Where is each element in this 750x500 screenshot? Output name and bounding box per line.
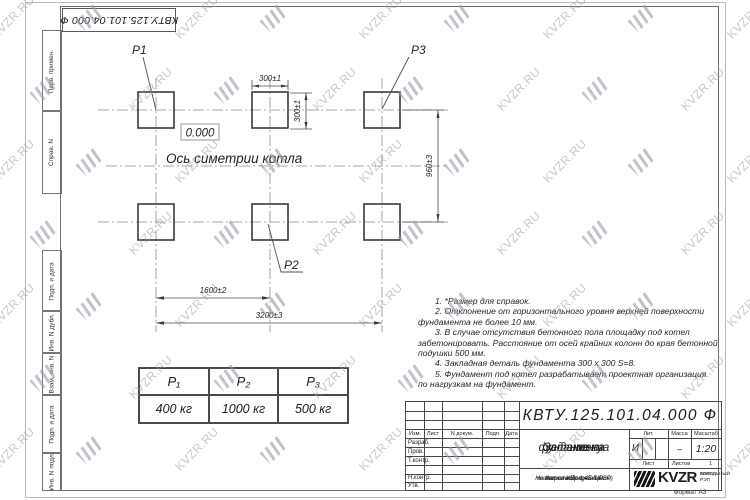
tb-header-data: Дата [504, 429, 519, 438]
technical-notes: 1. *Размер для справок. 2. Отклонение от… [418, 296, 718, 390]
kvzr-logo-icon [634, 471, 655, 487]
symmetry-axis-label: Ось симетрии котла [166, 151, 303, 166]
label-p1: Р1 [132, 43, 147, 57]
tb-header-list: Лист [424, 429, 442, 438]
dim-1600: 1600±2 [200, 286, 227, 295]
note-line: забетонировать. Расстояние от осей крайн… [418, 338, 718, 348]
tb-header-ndokum: N докум. [442, 429, 482, 438]
format-label: Формат А3 [640, 489, 740, 496]
tb-header-izm: Изм. [406, 429, 424, 438]
sheets-value: 1 [709, 461, 712, 467]
sheet-label: Лист [629, 459, 668, 468]
note-line: 2. Отклонение от горизонтального уровня … [418, 306, 718, 316]
label-p3: Р3 [411, 43, 426, 57]
mass-value: – [668, 438, 691, 459]
note-line: 5. Фундамент под котел разрабатывает про… [418, 369, 718, 379]
center-axes [98, 78, 448, 332]
loads-value-p1: 400 кг [139, 395, 209, 423]
kvzr-logo-text: KVZR [658, 469, 697, 486]
title-block: КВТУ.125.101.04.000 Ф Изм. Лист N докум.… [405, 401, 722, 491]
lit-label: Лит. [629, 429, 668, 438]
manufacturer-logo: KVZR КОТЕЛЬНЫЙ ЗАВОД РЭП [629, 468, 721, 490]
loads-table: Р₁ Р₂ Р₃ 400 кг 1000 кг 500 кг [138, 367, 349, 424]
lit-value: И [629, 438, 642, 459]
drawing-subtitle: Котел водогрейный Heatexpert-КВр-1,45-К(… [519, 468, 629, 490]
mass-label: Масса [668, 429, 691, 438]
tb-row-tkontr: Т.контр. [406, 458, 430, 464]
loads-value-p3: 500 кг [278, 395, 348, 423]
dim-300-height: 300±1 [293, 100, 302, 122]
loads-value-p2: 1000 кг [209, 395, 279, 423]
note-line: по нагрузкам на фундамент. [418, 379, 718, 389]
loads-header-p2: Р₂ [209, 368, 279, 395]
sheets-label: Листов [672, 461, 690, 467]
note-line: 1. *Размер для справок. [418, 296, 718, 306]
drawing-sheet: КВТУ.125.101.04.000 Ф Перв. примен. Спра… [0, 0, 750, 500]
drawing-title: Задание на установку фундамента [519, 429, 629, 468]
note-line: 3. В случае отсутствия бетонного пола пл… [418, 327, 718, 337]
tb-row-utv: Утв. [406, 483, 419, 489]
loads-header-p3: Р₃ [278, 368, 348, 395]
tb-row-prov: Пров. [406, 449, 424, 455]
doc-number: КВТУ.125.101.04.000 Ф [519, 402, 721, 429]
note-line: подушки 500 мм. [418, 348, 718, 358]
dim-960: 960±3 [425, 154, 434, 177]
loads-header-p1: Р₁ [139, 368, 209, 395]
note-line: 4. Закладная деталь фундамента 300 x 300… [418, 358, 718, 368]
tb-row-nkontr: Н.контр. [406, 475, 431, 481]
tb-row-razrab: Разраб. [406, 440, 430, 446]
level-mark: 0.000 [186, 128, 215, 140]
dim-300-width: 300±1 [259, 74, 281, 83]
scale-value: 1:20 [691, 438, 721, 459]
dim-3200: 3200±3 [256, 311, 283, 320]
note-line: фундамента не более 10 мм. [418, 317, 718, 327]
tb-header-podp: Подп. [482, 429, 504, 438]
scale-label: Масштаб [691, 429, 721, 438]
label-p2: Р2 [284, 258, 299, 272]
